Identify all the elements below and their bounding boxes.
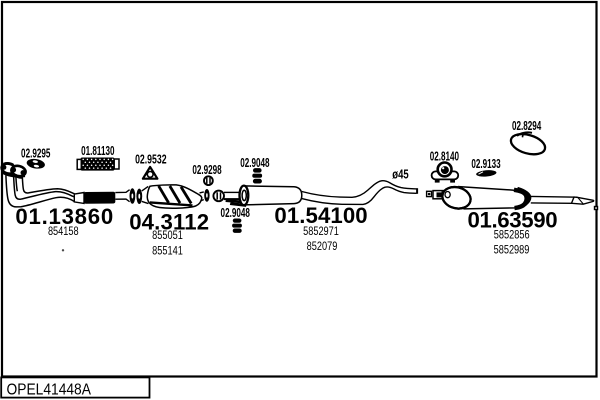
svg-text:02.9048: 02.9048 bbox=[240, 156, 269, 170]
svg-text:02.8140: 02.8140 bbox=[430, 150, 459, 164]
svg-text:02.9295: 02.9295 bbox=[21, 147, 50, 161]
svg-text:OPEL41448A: OPEL41448A bbox=[7, 382, 92, 399]
svg-text:855141: 855141 bbox=[152, 244, 183, 257]
svg-text:02.8294: 02.8294 bbox=[512, 119, 542, 133]
svg-text:02.9532: 02.9532 bbox=[135, 153, 166, 167]
svg-text:5852989: 5852989 bbox=[494, 243, 530, 256]
svg-text:854158: 854158 bbox=[48, 225, 79, 238]
svg-text:02.9048: 02.9048 bbox=[221, 206, 250, 220]
svg-text:5852856: 5852856 bbox=[494, 228, 530, 241]
svg-text:852079: 852079 bbox=[307, 240, 338, 253]
svg-text:01.81130: 01.81130 bbox=[81, 144, 114, 158]
svg-text:855051: 855051 bbox=[152, 229, 183, 242]
svg-text:02.9133: 02.9133 bbox=[471, 157, 500, 171]
svg-text:02.9298: 02.9298 bbox=[192, 163, 221, 177]
svg-text:ø45: ø45 bbox=[392, 168, 409, 182]
svg-text:5852971: 5852971 bbox=[303, 225, 339, 238]
